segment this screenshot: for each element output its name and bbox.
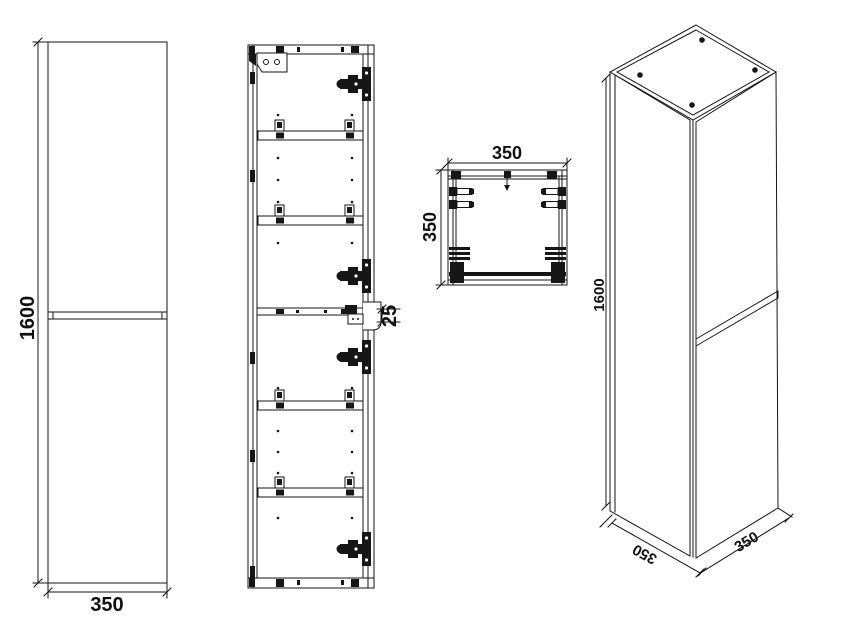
dimension-label-width: 350 [90, 594, 123, 616]
height-dimension-1600: 1600 [17, 38, 48, 587]
isometric-view: 1600 350 350 [591, 25, 793, 577]
top-view-depth-dimension: 350 [420, 166, 448, 289]
dimension-label-iso-depth: 350 [630, 540, 660, 567]
iso-height-dimension: 1600 [591, 74, 610, 510]
dimension-label-top-width: 350 [492, 143, 522, 163]
internal-front-view: 25 [248, 45, 401, 588]
top-view-width-dimension: 350 [444, 143, 571, 170]
iso-side-face [610, 72, 690, 556]
width-dimension-350: 350 [44, 583, 171, 616]
dimension-label-height: 1600 [17, 296, 39, 341]
dimension-label-door-gap: 25 [379, 305, 401, 327]
technical-drawing-canvas: 1600 350 [0, 0, 847, 618]
cabinet-technical-drawing: 1600 350 [0, 0, 847, 618]
dimension-label-iso-height: 1600 [591, 278, 608, 311]
dimension-label-top-depth: 350 [420, 212, 440, 242]
top-plan-view: 350 350 [420, 143, 571, 289]
front-elevation-view: 1600 350 [17, 38, 171, 616]
divider-gap-dimension-25: 25 [377, 305, 401, 327]
